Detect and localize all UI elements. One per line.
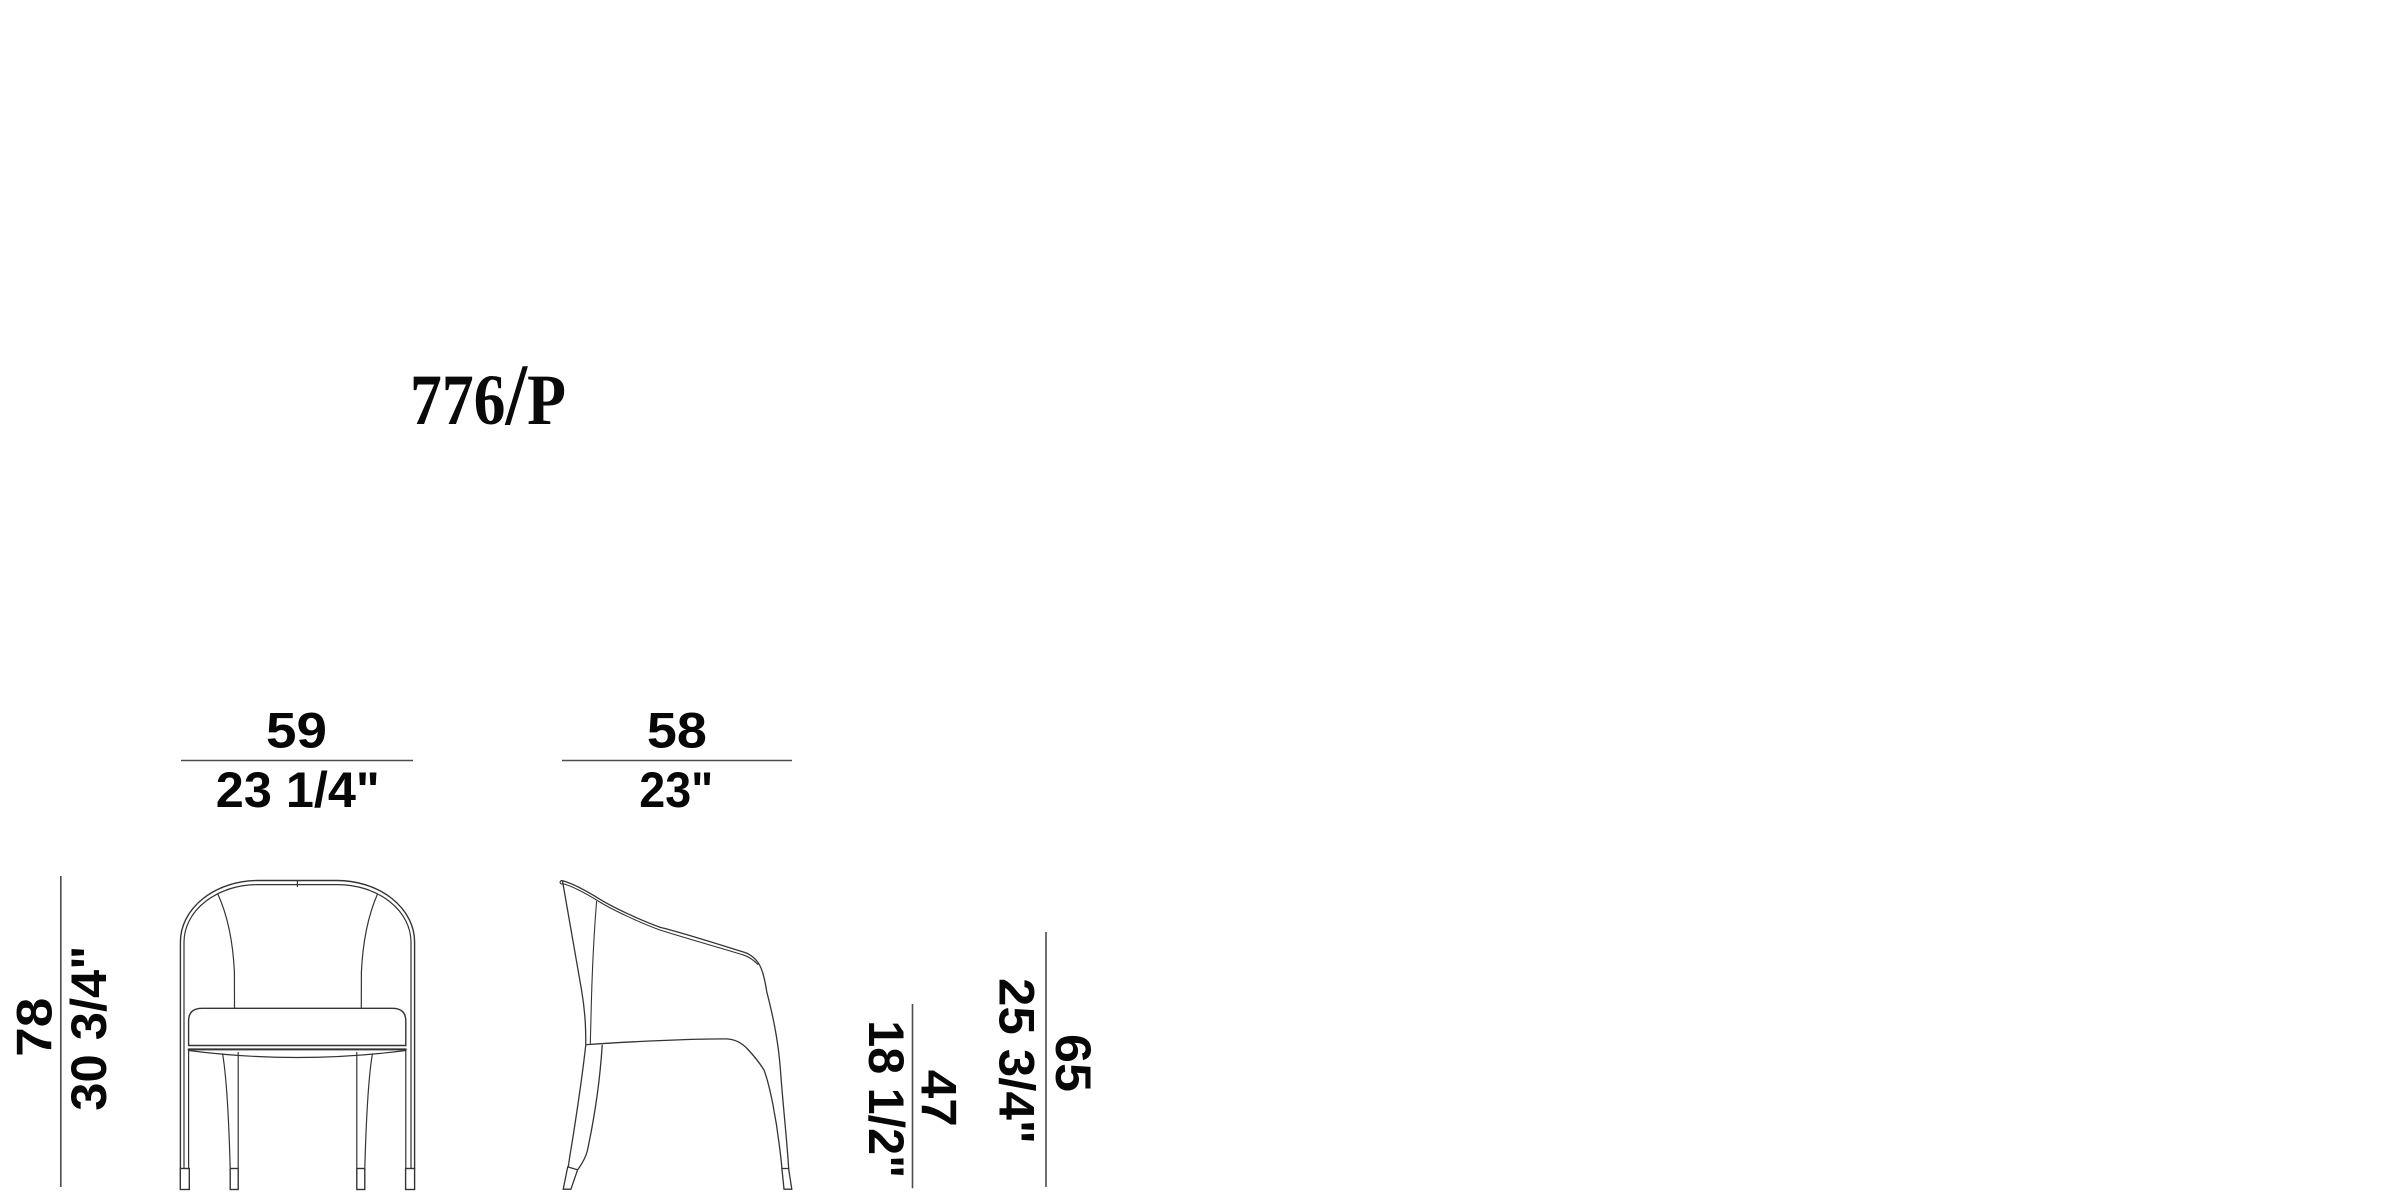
svg-text:18 1/2": 18 1/2" [858, 1020, 914, 1178]
svg-text:776/P: 776/P [410, 347, 566, 444]
svg-text:25 3/4": 25 3/4" [989, 978, 1045, 1144]
svg-text:23 1/4": 23 1/4" [216, 762, 380, 818]
svg-text:58: 58 [647, 702, 707, 758]
svg-text:78: 78 [6, 998, 62, 1057]
svg-text:59: 59 [266, 702, 327, 758]
svg-text:65: 65 [1045, 1034, 1101, 1092]
svg-text:30 3/4": 30 3/4" [61, 946, 117, 1111]
svg-text:47: 47 [911, 1070, 967, 1127]
svg-text:23": 23" [639, 762, 713, 818]
